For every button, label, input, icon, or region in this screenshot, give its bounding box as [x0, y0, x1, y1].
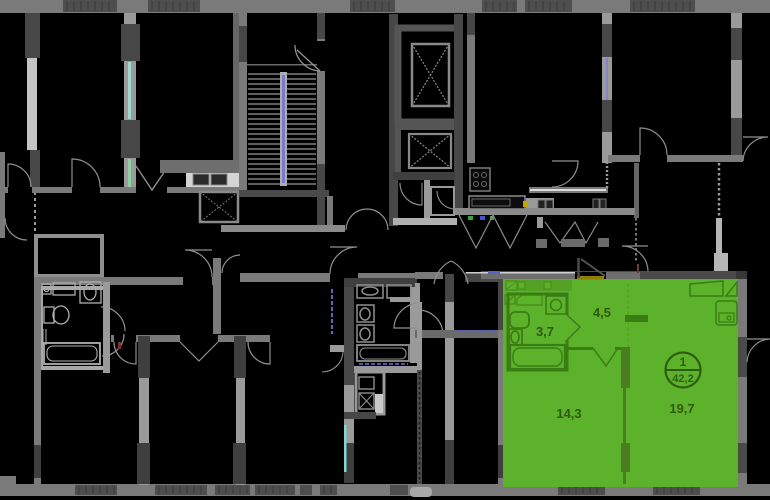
svg-text:19,7: 19,7 [669, 401, 694, 416]
svg-text:1: 1 [680, 355, 687, 369]
svg-text:4,5: 4,5 [593, 305, 611, 320]
svg-text:42,2: 42,2 [672, 373, 693, 385]
svg-text:3,7: 3,7 [536, 324, 554, 339]
svg-text:14,3: 14,3 [556, 406, 581, 421]
